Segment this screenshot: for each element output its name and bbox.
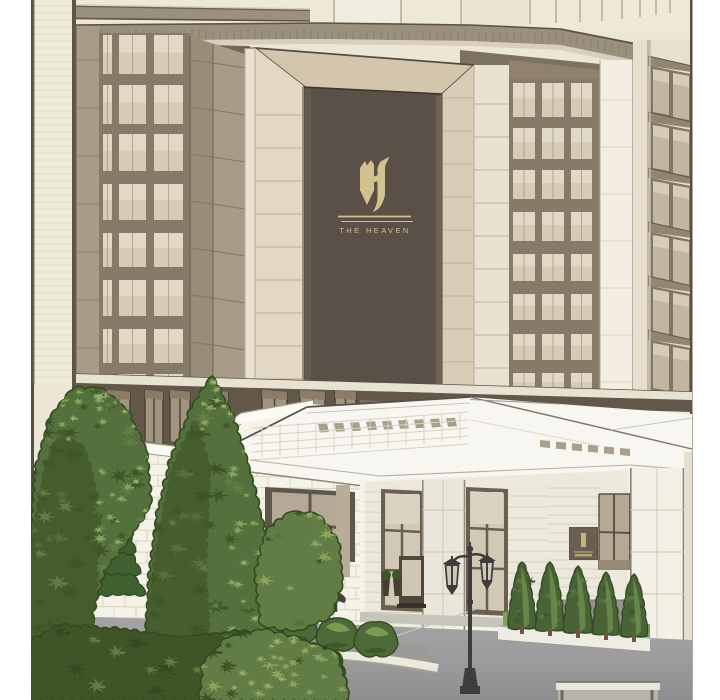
svg-text:THE HEAVEN: THE HEAVEN (339, 226, 410, 235)
